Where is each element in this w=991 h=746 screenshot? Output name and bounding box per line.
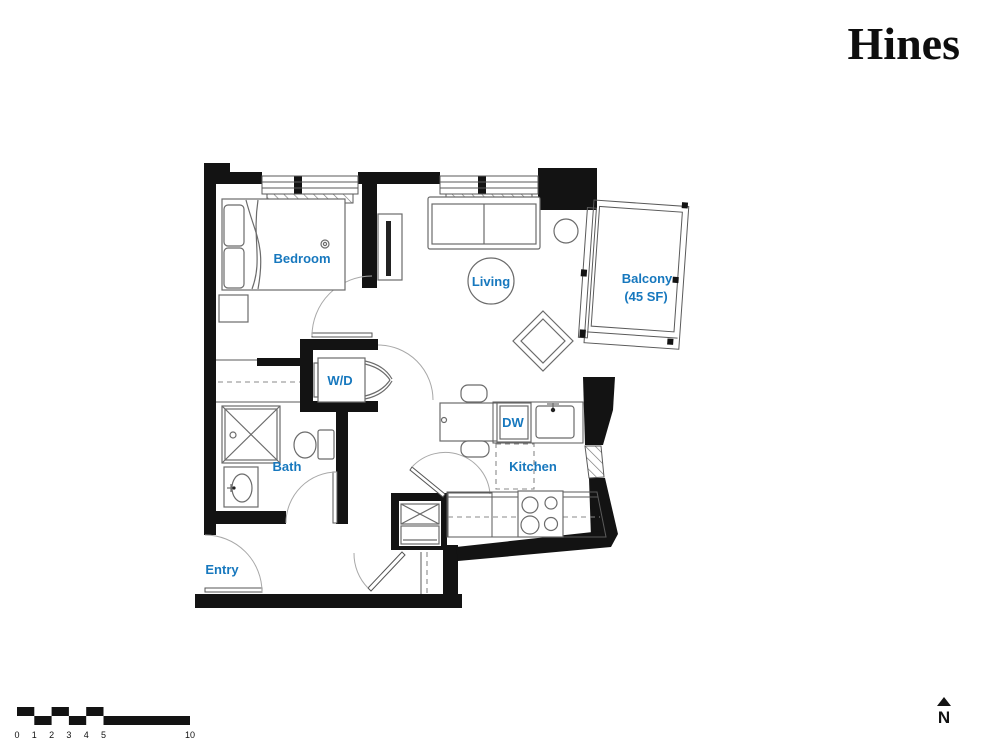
scale-bar: 0 1 2 3 4 5 10	[14, 707, 195, 740]
chair	[461, 385, 487, 402]
entry-closet	[421, 552, 427, 594]
chair	[461, 441, 489, 457]
tv-console	[378, 214, 402, 280]
bath-fixtures	[222, 406, 334, 507]
balcony-sliding-door	[576, 207, 596, 337]
pillow	[224, 248, 244, 288]
room-label-dw: DW	[502, 415, 524, 430]
room-label-bath: Bath	[273, 459, 302, 474]
railing-post	[667, 338, 673, 344]
toilet	[294, 430, 334, 459]
room-label-balcony: Balcony	[622, 271, 673, 286]
kitchen-window	[585, 446, 604, 478]
room-label-kitchen: Kitchen	[509, 459, 557, 474]
ottoman	[513, 311, 573, 371]
shower	[222, 406, 280, 463]
bath-door	[286, 472, 337, 523]
wd-closet-bifold-door	[365, 345, 433, 400]
floorplan-svg: Bedroom Living Balcony (45 SF) W/D DW Ba…	[0, 0, 991, 746]
lower-counter	[447, 491, 606, 537]
north-arrow: N	[937, 697, 951, 727]
room-label-balcony-area: (45 SF)	[624, 289, 667, 304]
scale-tick: 2	[49, 730, 54, 740]
entry-closet-door	[354, 552, 405, 591]
vanity-sink	[224, 467, 258, 507]
room-label-bedroom: Bedroom	[273, 251, 330, 266]
kitchen-hall-door	[410, 452, 490, 497]
north-arrow-icon	[937, 697, 951, 706]
room-label-entry: Entry	[205, 562, 239, 577]
room-label-wd: W/D	[327, 373, 352, 388]
scale-tick: 0	[14, 730, 19, 740]
scale-tick: 10	[185, 730, 195, 740]
kitchen-sink	[536, 403, 574, 438]
pillow	[224, 205, 244, 246]
floorplan-page: Hines	[0, 0, 991, 746]
nightstand	[219, 295, 248, 322]
scale-tick: 1	[32, 730, 37, 740]
railing-post	[672, 277, 678, 283]
dining-table	[440, 385, 498, 457]
room-label-living: Living	[472, 274, 510, 289]
stove	[518, 491, 563, 537]
railing-post	[682, 202, 688, 208]
north-label: N	[938, 708, 950, 727]
scale-tick: 3	[66, 730, 71, 740]
side-table	[554, 219, 578, 243]
scale-tick: 5	[101, 730, 106, 740]
scale-tick: 4	[84, 730, 89, 740]
